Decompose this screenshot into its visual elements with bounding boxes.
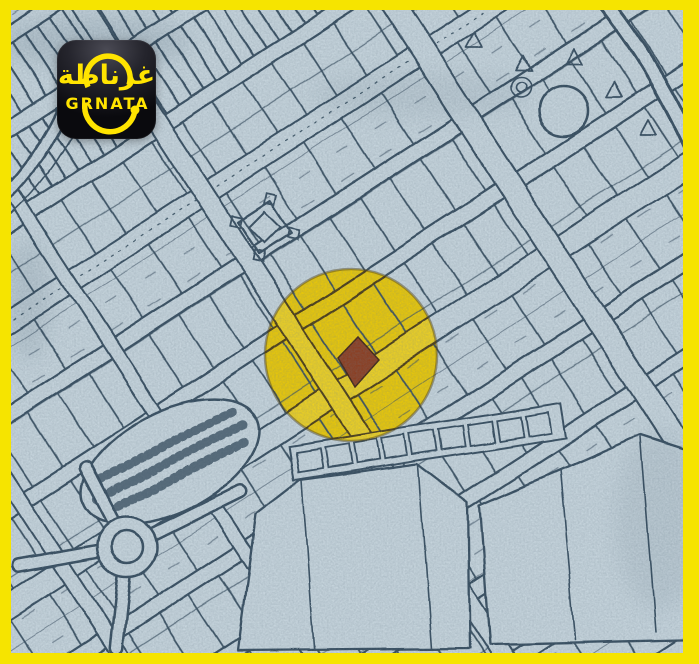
logo-arabic-name: غرناطة (57, 59, 156, 93)
grnata-logo: غرناطة GRNATA (57, 40, 156, 139)
map-poster: غرناطة GRNATA (0, 0, 699, 664)
logo-latin-name: GRNATA (57, 95, 156, 113)
